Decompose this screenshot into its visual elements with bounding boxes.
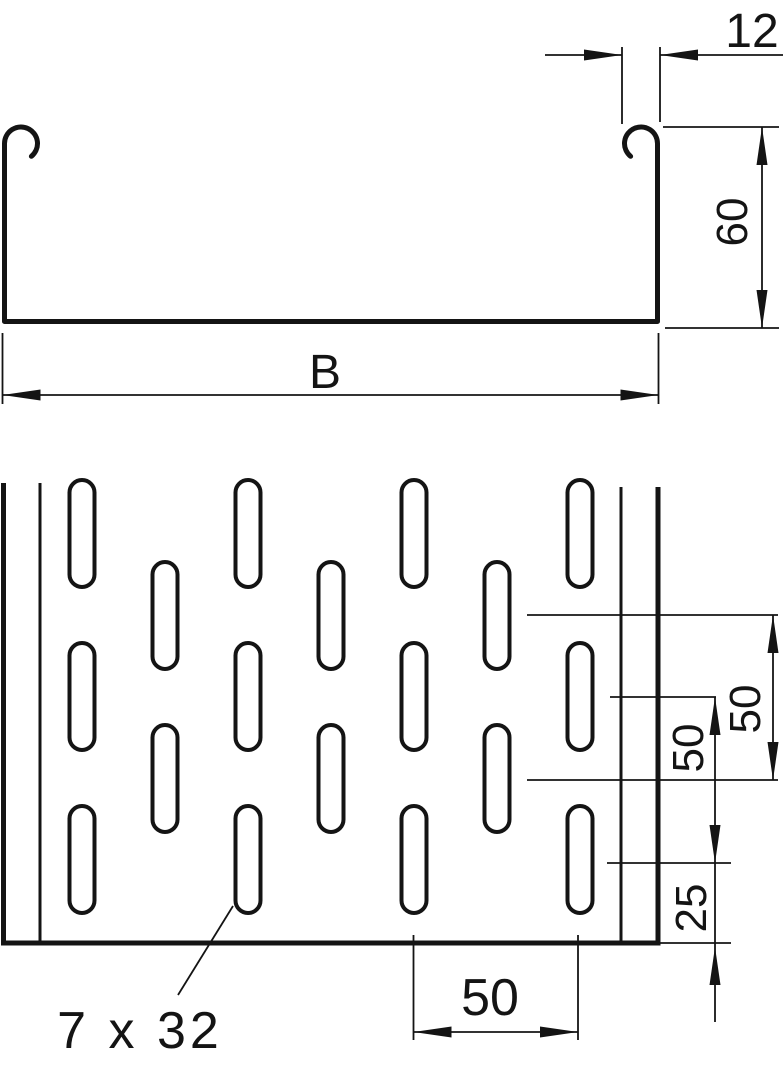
arrowhead (710, 825, 721, 863)
dimension-row-pitch-and-end: 50 25 (664, 697, 721, 1022)
arrowhead (414, 1027, 452, 1038)
dimension-overall-width: B (3, 333, 659, 404)
arrowhead (768, 615, 779, 653)
dimension-lip-width: 12 (545, 5, 783, 124)
slot-size-callout: 7 x 32 (57, 906, 233, 1060)
arrowhead (540, 1027, 578, 1038)
dimension-side-height: 60 (663, 127, 779, 328)
slot-hole (568, 806, 593, 913)
slot-hole (70, 480, 95, 587)
slot-hole (402, 806, 427, 913)
arrowhead (621, 390, 659, 401)
section-view: 12 60 B (3, 5, 784, 404)
arrowhead (3, 390, 41, 401)
dim-label-row-pitch: 50 (664, 724, 713, 773)
dimension-column-pitch: 50 (414, 935, 579, 1040)
dim-label-column-pitch: 50 (461, 969, 519, 1027)
slot-hole (70, 806, 95, 913)
slot-hole (236, 806, 261, 913)
arrowhead (660, 50, 698, 61)
slot-hole (153, 725, 178, 832)
cable-tray-technical-drawing: 12 60 B (0, 0, 784, 1066)
plate-outline (1, 483, 661, 943)
slot-size-label: 7 x 32 (57, 1002, 223, 1060)
drawing-canvas: 12 60 B (0, 0, 784, 1066)
tray-profile-outline (4, 127, 657, 322)
arrowhead (757, 127, 768, 165)
dimension-row-offset: 50 (721, 615, 779, 780)
dim-label-side-height: 60 (708, 198, 757, 247)
leader-line (178, 906, 233, 995)
slot-hole (568, 480, 593, 587)
slot-hole (402, 480, 427, 587)
slot-hole (485, 562, 510, 669)
arrowhead (710, 947, 721, 985)
arrowhead (757, 290, 768, 328)
slot-hole (236, 643, 261, 750)
slot-hole (70, 643, 95, 750)
dim-label-row-offset: 50 (721, 685, 770, 734)
slot-centre-lines (527, 615, 778, 943)
slot-hole (568, 643, 593, 750)
slot-hole (236, 480, 261, 587)
arrowhead (768, 742, 779, 780)
plan-view: 50 50 25 50 7 x 32 (1, 480, 779, 1060)
arrowhead (584, 50, 622, 61)
dim-label-end-distance: 25 (667, 884, 716, 933)
dim-label-overall-width: B (309, 346, 341, 399)
slot-hole (319, 725, 344, 832)
slot-pattern (70, 480, 593, 913)
dim-label-lip-width: 12 (725, 5, 778, 58)
slot-hole (485, 725, 510, 832)
slot-hole (402, 643, 427, 750)
slot-hole (153, 562, 178, 669)
slot-hole (319, 562, 344, 669)
